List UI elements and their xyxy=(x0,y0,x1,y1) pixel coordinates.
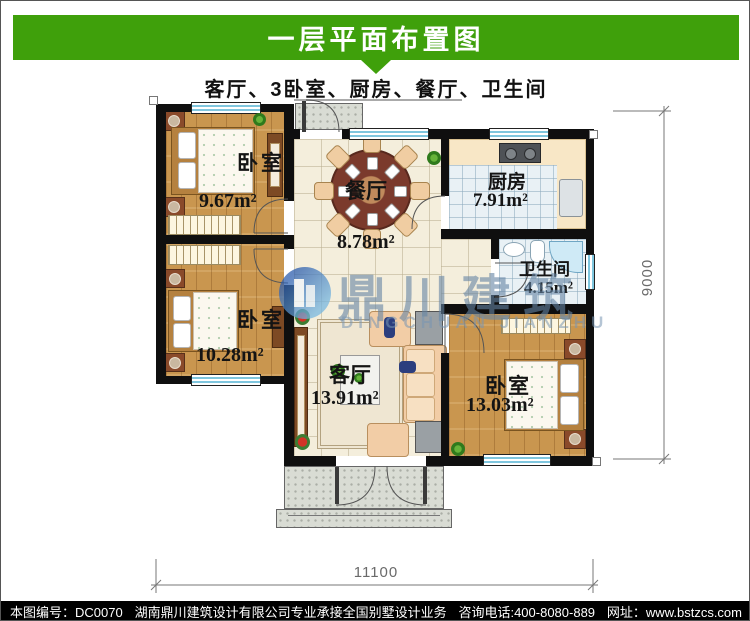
subtitle: 客厅、3卧室、厨房、餐厅、卫生间 xyxy=(1,73,750,102)
dining-area: 8.78m² xyxy=(337,231,395,254)
website-url: 网址：www.bstzcs.com xyxy=(607,602,742,621)
floor-plan-page: 一层平面布置图 客厅、3卧室、厨房、餐厅、卫生间 xyxy=(0,0,750,621)
door-arc xyxy=(387,466,426,505)
bedroom-ml-label: 卧室 xyxy=(237,304,285,334)
footer-bar: 本图编号：DC0070 湖南鼎川建筑设计有限公司专业承接全国别墅设计业务 咨询电… xyxy=(1,601,750,621)
bedroom-tl-area: 9.67m² xyxy=(199,190,257,213)
door-arc xyxy=(445,314,484,353)
door-arc xyxy=(254,199,288,233)
company-name: 湖南鼎川建筑设计有限公司专业承接全国别墅设计业务 xyxy=(135,602,447,621)
living-label: 客厅 xyxy=(329,359,371,389)
bathroom-label: 卫生间 xyxy=(519,255,570,280)
bedroom-ml-area: 10.28m² xyxy=(196,344,264,367)
drawing-number: 本图编号：DC0070 xyxy=(10,602,123,621)
bedroom-tl-label: 卧室 xyxy=(237,147,285,177)
title-bar: 一层平面布置图 xyxy=(13,15,739,60)
title-arrow-icon xyxy=(361,60,391,74)
dimension-width-label: 11100 xyxy=(346,564,406,581)
door-arc xyxy=(254,249,288,283)
bedroom-br-area: 13.03m² xyxy=(466,394,534,417)
door-arc xyxy=(306,100,339,132)
dining-label: 餐厅 xyxy=(345,175,387,205)
dimension-height-label: 9000 xyxy=(639,259,656,296)
door-arc xyxy=(412,196,445,229)
door-arc xyxy=(336,466,375,505)
page-title: 一层平面布置图 xyxy=(268,18,485,57)
living-area: 13.91m² xyxy=(311,387,379,410)
kitchen-area: 7.91m² xyxy=(473,190,528,212)
bathroom-area: 4.15m² xyxy=(524,278,573,298)
phone-number: 咨询电话:400-8080-889 xyxy=(458,602,595,621)
